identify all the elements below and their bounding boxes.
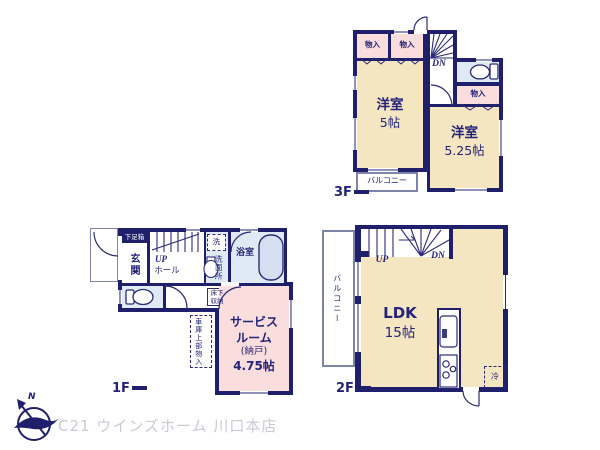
- floor-label-text: 1F: [112, 381, 130, 396]
- washer-label: 洗: [207, 238, 226, 246]
- stairs-up-label: UP: [150, 255, 172, 265]
- closet-label: 物入: [457, 90, 499, 98]
- bathroom-label: 浴室: [231, 249, 259, 259]
- fridge-label: 冷: [484, 366, 506, 388]
- floor-label-bar: [354, 190, 369, 194]
- stove-icon: [440, 355, 457, 387]
- room-size: 5.25帖: [430, 144, 499, 158]
- north-label: N: [28, 393, 36, 403]
- room-label: 洋室: [357, 98, 423, 113]
- balcony-label: バルコニー: [332, 266, 341, 332]
- washroom-label: 洗面所: [214, 253, 222, 283]
- room-size: 5帖: [357, 116, 423, 130]
- floor-label-text: 3F: [334, 185, 352, 200]
- garage-storage-label: 車庫上部物入: [194, 318, 202, 366]
- closet-label: 物入: [357, 41, 388, 49]
- stairs-dn-label: DN: [426, 251, 450, 261]
- service-room-label-3: (納戸): [219, 347, 289, 357]
- balcony-label: バルコニー: [356, 177, 418, 186]
- service-room-label-4: 4.75帖: [219, 360, 289, 373]
- floor-label-text: 2F: [336, 381, 354, 396]
- door-arc: [463, 391, 479, 406]
- room-size: 15帖: [364, 326, 436, 341]
- toilet-icon-3f: [471, 64, 499, 79]
- entrance-label: 玄関: [128, 248, 139, 282]
- stairs-3f-fan: [430, 34, 453, 58]
- shoe-box-label: 下足箱: [122, 232, 147, 243]
- floor-label-1f: 1F: [112, 382, 147, 396]
- toilet-icon-1f: [126, 290, 153, 305]
- floor-plan: 物入 物入 DN 洋室 5帖 物入 洋室 5.25帖 バルコニー 3F UP D…: [0, 0, 600, 450]
- room-label: 洋室: [430, 126, 499, 141]
- stairs-dn-label: DN: [424, 59, 454, 69]
- service-room-label-2: ルーム: [219, 332, 289, 345]
- floor-label-bar: [132, 386, 147, 390]
- kitchen-sink-icon: [440, 316, 457, 347]
- service-room-label-1: サービス: [219, 316, 289, 329]
- stairs-up-label: UP: [370, 255, 394, 265]
- plan-linework: [0, 0, 600, 450]
- north-arrow-icon: [14, 399, 59, 440]
- closet-label: 物入: [391, 41, 423, 49]
- stairs-1f: [152, 232, 199, 252]
- floor-label-2f: 2F: [336, 382, 371, 396]
- hall-label: ホール: [145, 267, 189, 276]
- company-logo-text: C21 ウインズホーム 川口本店: [58, 418, 277, 435]
- bathtub-icon: [259, 235, 283, 280]
- room-label: LDK: [364, 305, 436, 322]
- floor-label-3f: 3F: [334, 186, 369, 200]
- underfloor-label-2: 収納: [207, 298, 227, 305]
- floor-label-bar: [356, 386, 371, 390]
